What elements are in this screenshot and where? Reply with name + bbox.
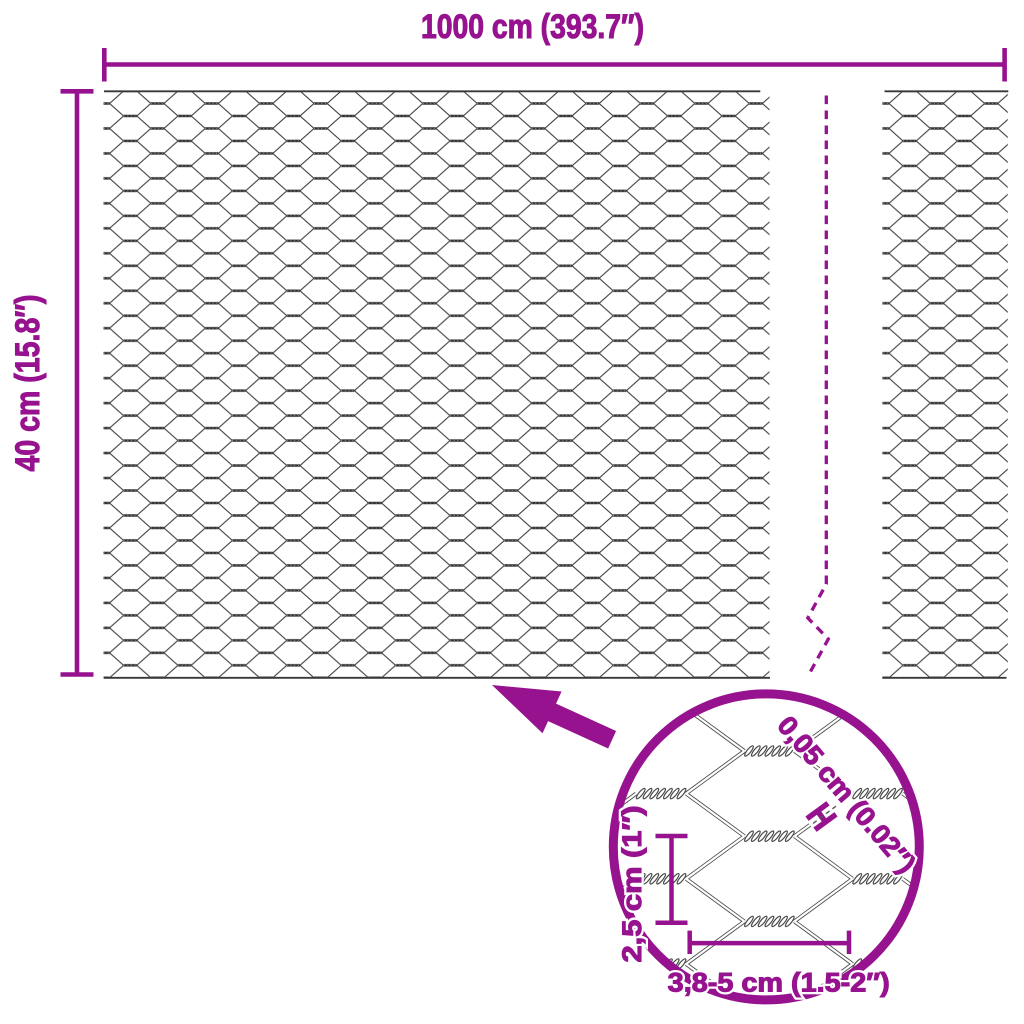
svg-text:3,8-5 cm (1.5-2″): 3,8-5 cm (1.5-2″) [668, 968, 890, 998]
svg-text:40 cm (15.8″): 40 cm (15.8″) [9, 295, 47, 472]
svg-text:1000 cm (393.7″): 1000 cm (393.7″) [421, 8, 644, 46]
svg-text:2,5 cm (1″): 2,5 cm (1″) [617, 806, 647, 963]
